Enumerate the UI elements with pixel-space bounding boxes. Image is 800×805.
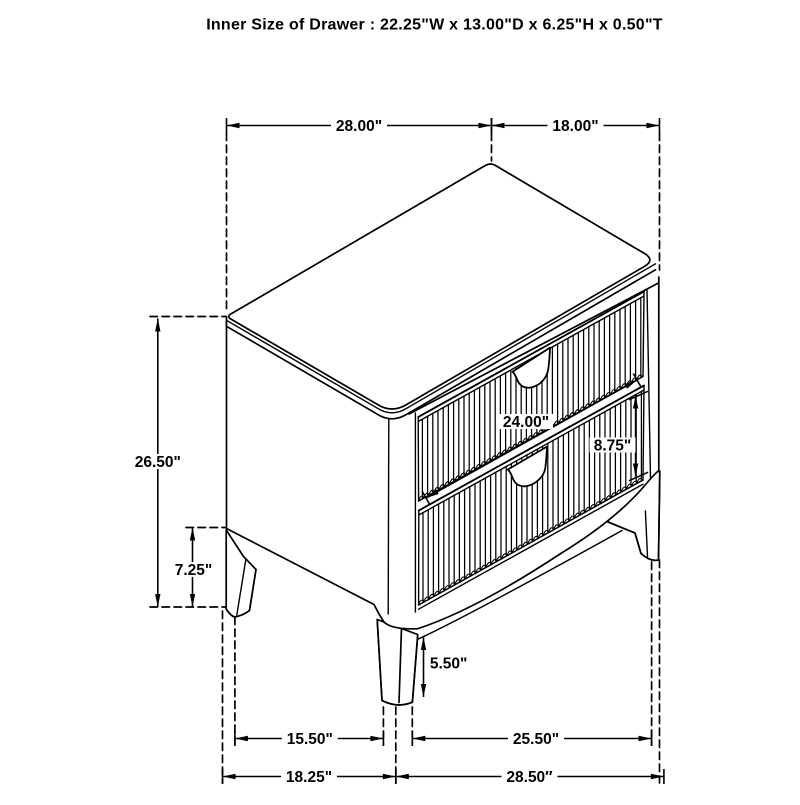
svg-text:7.25": 7.25" xyxy=(175,562,213,579)
svg-text:5.50": 5.50" xyxy=(430,655,468,672)
svg-text:25.50": 25.50" xyxy=(513,731,559,748)
svg-text:26.50": 26.50" xyxy=(135,454,181,471)
svg-text:18.25": 18.25" xyxy=(286,769,332,786)
svg-text:18.00": 18.00" xyxy=(552,118,598,135)
svg-text:28.50″: 28.50″ xyxy=(506,769,553,786)
svg-text:Inner Size of Drawer : 22.25"W: Inner Size of Drawer : 22.25"W x 13.00"D… xyxy=(206,17,663,34)
svg-text:28.00": 28.00" xyxy=(336,118,382,135)
svg-text:8.75": 8.75" xyxy=(594,437,632,454)
svg-text:15.50": 15.50" xyxy=(287,731,333,748)
svg-text:24.00": 24.00" xyxy=(503,414,549,431)
